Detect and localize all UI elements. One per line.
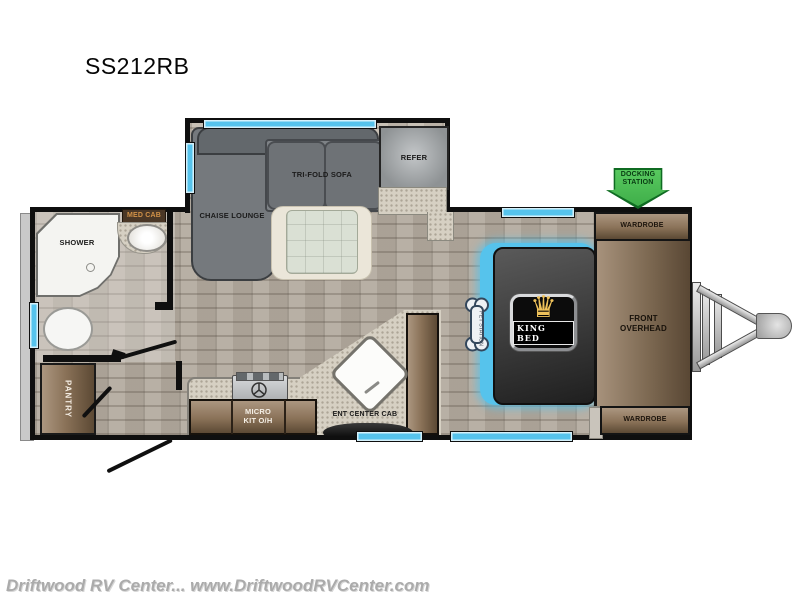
hitch-brace: [702, 289, 710, 365]
crown-icon: ♛: [513, 291, 574, 325]
micro-label: MICRO KIT O/H: [238, 408, 278, 425]
tri-fold-sofa-label: TRI-FOLD SOFA: [272, 171, 372, 180]
table: [286, 210, 358, 274]
window: [203, 119, 377, 129]
bath-wall-vertical: [167, 211, 173, 307]
pantry-label: PANTRY: [63, 380, 72, 418]
front-overhead: FRONT OVERHEAD: [594, 241, 690, 406]
bath-wall-horizontal: [43, 355, 121, 362]
cabinet-divider: [284, 400, 286, 434]
pet-station-label: PET STATION: [478, 311, 484, 346]
floorplan-canvas: SS212RB CHAISE LOUNGE TRI-FOLD SOFA REFE…: [0, 0, 800, 600]
counter-by-refer: [378, 187, 447, 215]
range-fan-icon: [250, 381, 268, 399]
window: [501, 207, 575, 218]
shower-drain-icon: [86, 263, 95, 272]
window: [29, 302, 39, 349]
refer-label: REFER: [401, 154, 427, 163]
watermark: Driftwood RV Center... www.DriftwoodRVCe…: [6, 576, 429, 596]
wardrobe-top-label: WARDROBE: [620, 222, 663, 230]
window: [185, 142, 195, 194]
wardrobe-bottom-label: WARDROBE: [623, 416, 666, 424]
docking-station-arrow: DOCKING STATION: [606, 168, 670, 209]
stove-burners: [236, 372, 284, 381]
cabinet-divider: [231, 400, 233, 434]
chaise-lounge-label: CHAISE LOUNGE: [195, 212, 269, 221]
window: [450, 431, 573, 442]
toilet: [43, 307, 93, 351]
vanity-sink: [127, 224, 167, 252]
docking-station-label: DOCKING STATION: [612, 171, 664, 187]
refrigerator: REFER: [379, 126, 449, 190]
hitch-coupler: [756, 313, 792, 339]
hitch-crossbar: [692, 282, 701, 372]
galley-wall-stub: [176, 361, 182, 390]
king-bed-badge: ♛ KING BED: [510, 294, 577, 351]
shower-label: SHOWER: [44, 239, 110, 248]
ent-center-label: ENT CENTER CAB: [320, 411, 410, 419]
front-overhead-label: FRONT OVERHEAD: [611, 314, 677, 332]
wardrobe-bottom: WARDROBE: [600, 406, 690, 435]
pantry: PANTRY: [40, 363, 96, 435]
tall-cabinet: [406, 313, 439, 435]
bath-wall-elbow: [155, 302, 173, 310]
entry-door: [106, 438, 172, 473]
window: [356, 431, 423, 442]
counter-by-refer-return: [427, 212, 454, 241]
med-cab-label: MED CAB: [127, 212, 161, 220]
wardrobe-top: WARDROBE: [594, 212, 690, 241]
page-title: SS212RB: [85, 53, 190, 80]
pet-station-icon: PET STATION: [463, 296, 491, 353]
